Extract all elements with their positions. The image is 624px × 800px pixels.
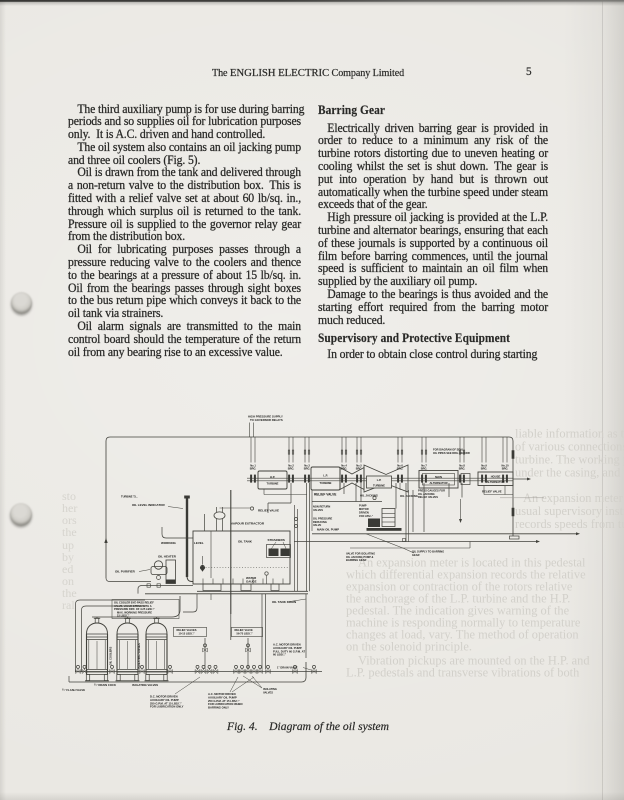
svg-text:ISOLATING VALVES: ISOLATING VALVES — [132, 683, 158, 687]
svg-text:BRG.: BRG. — [288, 467, 295, 471]
svg-text:DRIVEN: DRIVEN — [359, 511, 369, 515]
svg-text:TURBINE: TURBINE — [320, 481, 332, 485]
svg-text:RELIEF VALVE: RELIEF VALVE — [258, 509, 279, 513]
svg-text:OIL JACKING: OIL JACKING — [400, 494, 418, 498]
svg-text:TURBINE T.L.: TURBINE T.L. — [121, 495, 138, 499]
svg-text:HOUSE: HOUSE — [491, 475, 501, 479]
svg-text:OIL PURIFIER: OIL PURIFIER — [115, 570, 136, 574]
svg-text:ISOLATING VALVES: ISOLATING VALVES — [137, 643, 141, 669]
svg-text:10-15 LBS/□ʺ: 10-15 LBS/□ʺ — [179, 631, 196, 635]
svg-text:TO GOVERNOR RELAYS: TO GOVERNOR RELAYS — [250, 418, 283, 422]
svg-text:VAPOUR EXTRACTOR: VAPOUR EXTRACTOR — [231, 522, 265, 526]
svg-text:¾ʺ FLASH VALVE: ¾ʺ FLASH VALVE — [62, 688, 85, 692]
svg-text:L.P.: L.P. — [377, 478, 382, 482]
svg-text:BARRING ONLY: BARRING ONLY — [208, 706, 229, 710]
svg-text:MAIN OIL PUMP: MAIN OIL PUMP — [317, 528, 339, 532]
svg-text:L.P.: L.P. — [323, 474, 328, 478]
svg-text:ral: ral — [62, 598, 75, 612]
svg-text:TURBINE: TURBINE — [373, 484, 385, 488]
svg-text:TURBINE: TURBINE — [267, 482, 279, 486]
svg-text:BRG.: BRG. — [481, 467, 488, 471]
svg-text:250 G.P.M. AT 15 LBS/□ʺ: 250 G.P.M. AT 15 LBS/□ʺ — [208, 699, 240, 703]
svg-text:ALTERNATOR: ALTERNATOR — [429, 481, 447, 485]
svg-text:BRG.: BRG. — [502, 467, 509, 471]
svg-text:ISOLATING: ISOLATING — [263, 687, 277, 691]
svg-text:L.P. pedestals and transverse: L.P. pedestals and transverse vibrations… — [346, 666, 580, 680]
svg-text:AUXILIARY OIL PUMP: AUXILIARY OIL PUMP — [150, 698, 179, 702]
svg-text:AUXILIARY OIL PUMP: AUXILIARY OIL PUMP — [208, 695, 237, 699]
svg-text:BARRING GEAR: BARRING GEAR — [346, 558, 366, 562]
svg-text:RELIEF VALVE: RELIEF VALVE — [235, 628, 253, 632]
svg-text:on the solenoid principle.: on the solenoid principle. — [346, 640, 472, 654]
svg-text:OIL LEVEL INDICATOR: OIL LEVEL INDICATOR — [132, 503, 165, 507]
svg-text:¾ʺ DRAIN COCK: ¾ʺ DRAIN COCK — [94, 683, 116, 687]
svg-text:ALTERNATOR: ALTERNATOR — [486, 480, 504, 484]
svg-text:GEAR: GEAR — [412, 553, 420, 557]
svg-text:turbine. The working parts ar: turbine. The working parts are not — [515, 453, 624, 467]
svg-text:RELIEF VALVES: RELIEF VALVES — [418, 495, 438, 499]
svg-text:GAUGE: GAUGE — [246, 580, 257, 584]
svg-text:250 G.P.M. AT 15 LBS/□ʺ: 250 G.P.M. AT 15 LBS/□ʺ — [150, 701, 182, 705]
svg-text:STRAINERS: STRAINERS — [268, 538, 285, 542]
svg-text:FOR LUBRICATION WHEN: FOR LUBRICATION WHEN — [208, 702, 242, 706]
svg-text:D.C. MOTOR DRIVEN: D.C. MOTOR DRIVEN — [150, 695, 178, 699]
svg-text:RELIEF VALVE: RELIEF VALVE — [482, 490, 502, 494]
svg-text:56-75 LBS/□ʺ: 56-75 LBS/□ʺ — [237, 631, 254, 635]
svg-text:liable information as to the c: liable information as to the condition a… — [515, 427, 624, 441]
svg-text:60 LBS/□ʺ: 60 LBS/□ʺ — [273, 653, 287, 657]
svg-text:VALVE: VALVE — [313, 523, 322, 527]
svg-text:H.P.: H.P. — [270, 475, 275, 479]
svg-text:OIL TANK DRAIN: OIL TANK DRAIN — [272, 600, 296, 604]
svg-text:of various connections, partic: of various connections, particularly in … — [515, 440, 624, 454]
svg-text:OIL TANK: OIL TANK — [238, 540, 253, 544]
svg-text:OIL HEATER: OIL HEATER — [158, 555, 177, 559]
svg-text:the: the — [62, 525, 77, 539]
svg-text:A.C. MOTOR DRIVEN: A.C. MOTOR DRIVEN — [208, 692, 236, 696]
svg-text:PUMP: PUMP — [359, 504, 367, 508]
svg-text:under the casing, and the rela: under the casing, and the relays — [515, 466, 624, 480]
svg-text:MOTOR: MOTOR — [359, 507, 369, 511]
svg-text:records speeds from tur: records speeds from tur — [515, 517, 624, 531]
svg-text:1500 LBS/□ʺ: 1500 LBS/□ʺ — [359, 515, 373, 518]
svg-text:RELIEF VALVES: RELIEF VALVES — [177, 628, 197, 632]
svg-text:FULL DUTY 60 G.P.M. AT: FULL DUTY 60 G.P.M. AT — [273, 649, 305, 653]
svg-text:usual supervisory instru: usual supervisory instru — [515, 504, 624, 518]
svg-text:VALVES: VALVES — [313, 508, 323, 512]
svg-text:FOR LUBRICATION ONLY: FOR LUBRICATION ONLY — [150, 705, 184, 709]
svg-text:WORKING: WORKING — [161, 541, 176, 545]
svg-text:BRG.: BRG. — [250, 467, 257, 471]
svg-text:BRG.: BRG. — [421, 467, 428, 471]
svg-text:VALVES: VALVES — [263, 690, 273, 694]
svg-text:A.C. MOTOR DRIVEN: A.C. MOTOR DRIVEN — [273, 643, 301, 647]
svg-text:LEVEL: LEVEL — [194, 541, 204, 545]
svg-text:RELIEF VALVE: RELIEF VALVE — [314, 493, 336, 497]
svg-text:AUXILIARY OIL PUMP: AUXILIARY OIL PUMP — [273, 646, 302, 650]
svg-text:1ʺ DRAIN VALVE: 1ʺ DRAIN VALVE — [277, 666, 298, 670]
svg-text:OIL COOLERS: OIL COOLERS — [109, 647, 113, 666]
svg-text:BRG.: BRG. — [459, 467, 466, 471]
svg-text:BRG.: BRG. — [304, 467, 311, 471]
svg-text:MAIN: MAIN — [435, 475, 442, 479]
